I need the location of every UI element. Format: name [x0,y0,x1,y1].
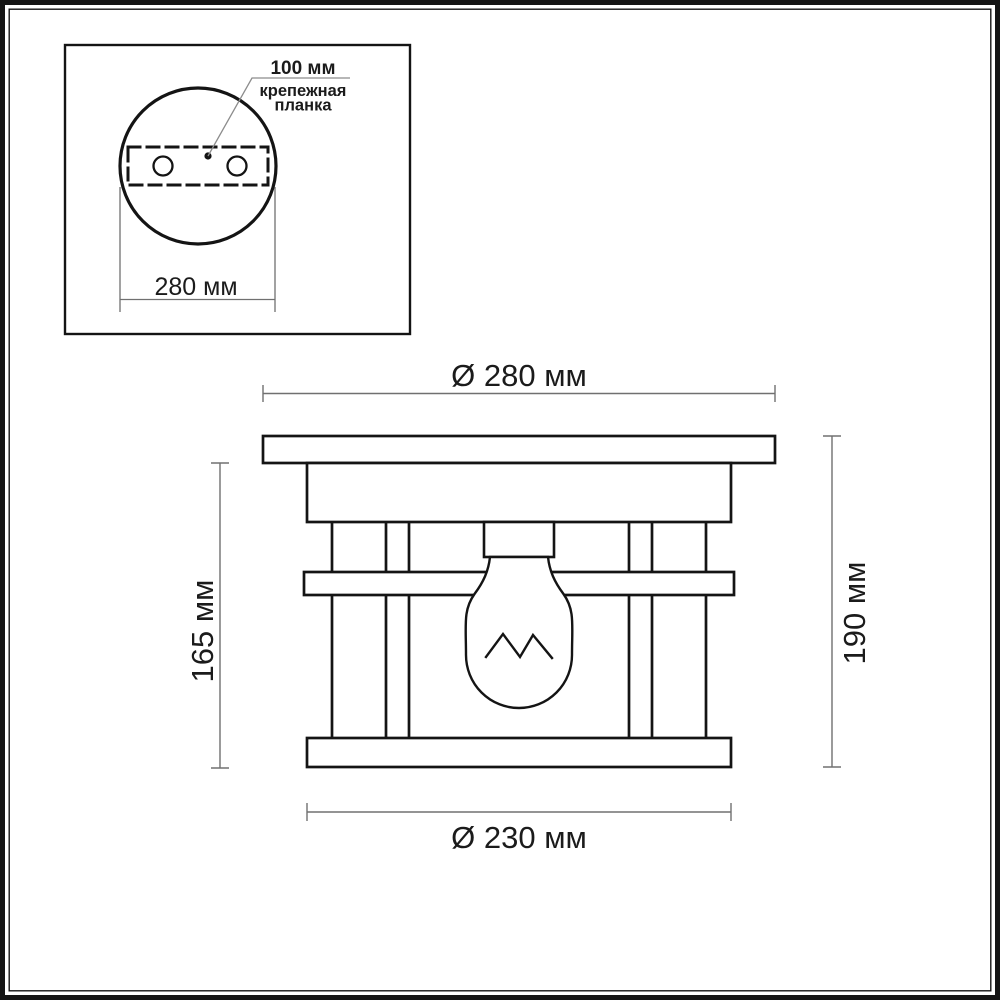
left-height-dimension: 165 мм [185,463,229,768]
mount-bar-label-line2: планка [274,97,332,115]
offset-dimension-label: 100 мм [270,58,335,79]
fixture-side-view [263,436,775,767]
right-height-dimension: 190 мм [823,436,872,767]
top-diameter-label: Ø 280 мм [451,358,587,393]
top-plate [263,436,775,463]
lamp-dimension-drawing: 100 мм крепежная планка 280 мм [0,0,1000,1000]
right-height-label: 190 мм [837,562,872,665]
lamp-socket [484,522,554,557]
top-diameter-dimension: Ø 280 мм [263,358,775,402]
technical-drawing-page: 100 мм крепежная планка 280 мм [0,0,1000,1000]
inset-diameter-dimension: 280 мм [120,187,275,312]
bottom-band [307,738,731,767]
bottom-diameter-label: Ø 230 мм [451,820,587,855]
screw-hole-left [154,157,173,176]
left-height-label: 165 мм [185,580,220,683]
screw-hole-right [228,157,247,176]
mounting-inset: 100 мм крепежная планка 280 мм [65,45,410,334]
plate-diameter-label: 280 мм [154,273,237,301]
mounting-plate-circle [120,88,276,244]
bottom-diameter-dimension: Ø 230 мм [307,803,731,855]
canopy-body [307,463,731,522]
